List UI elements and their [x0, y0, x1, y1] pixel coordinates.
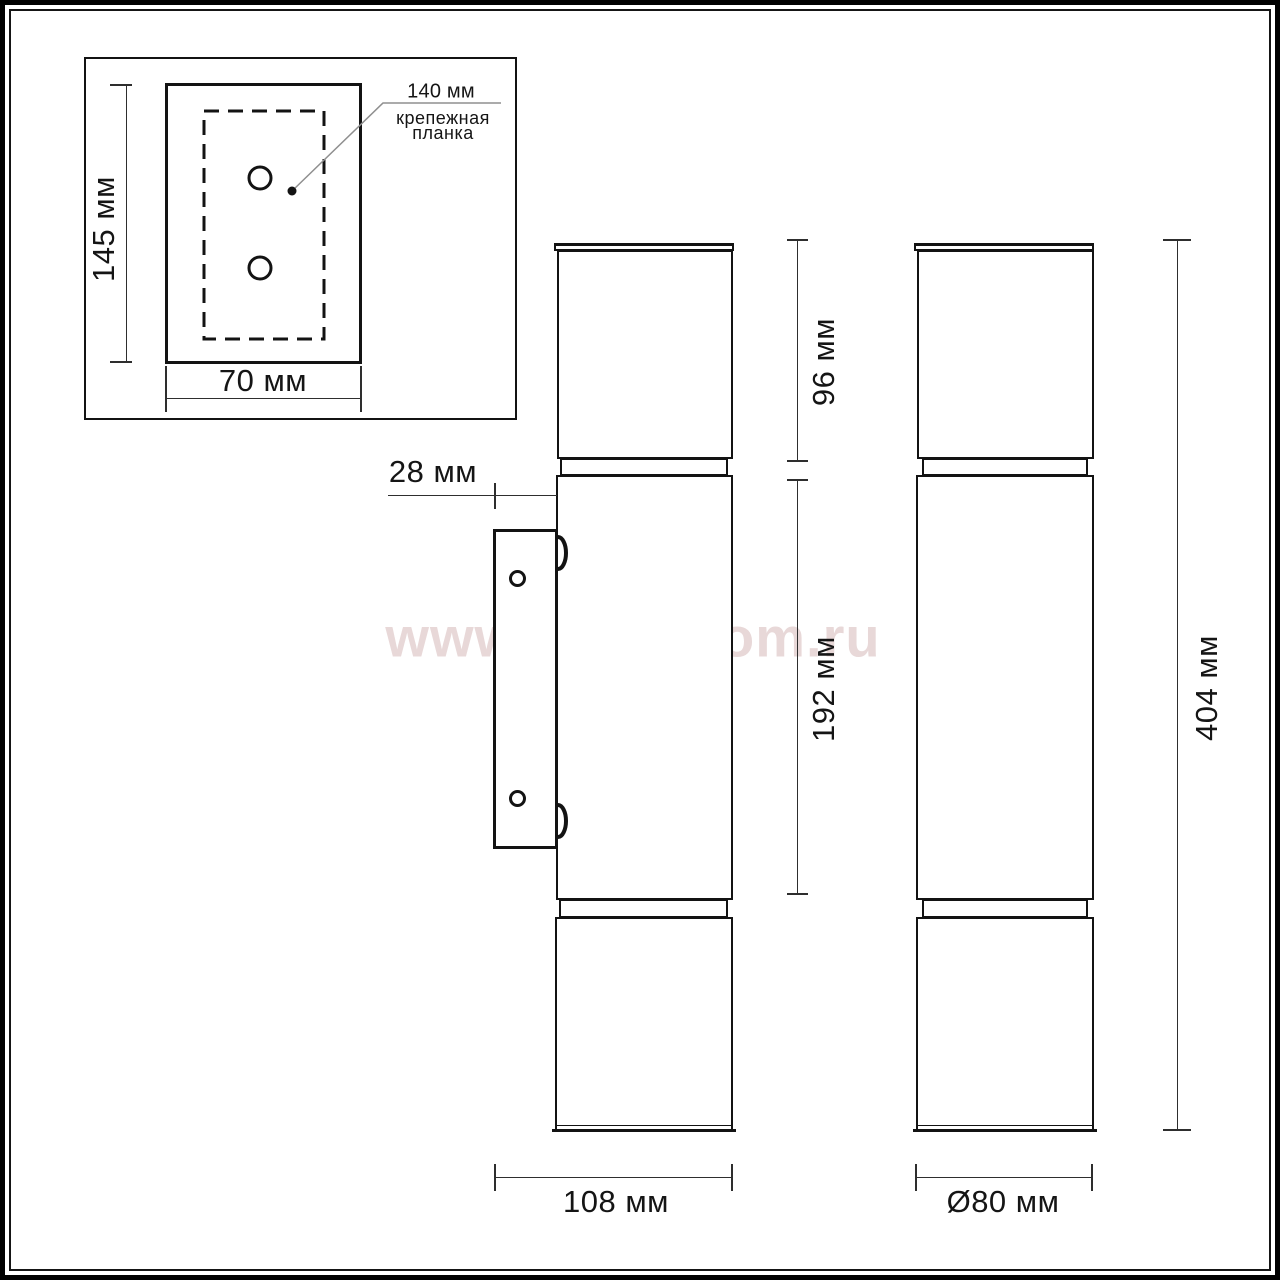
inner-border [9, 9, 1271, 1271]
drawing-canvas: www.svetodom.ru 145 мм 70 мм 140 мм креп… [0, 0, 1280, 1280]
